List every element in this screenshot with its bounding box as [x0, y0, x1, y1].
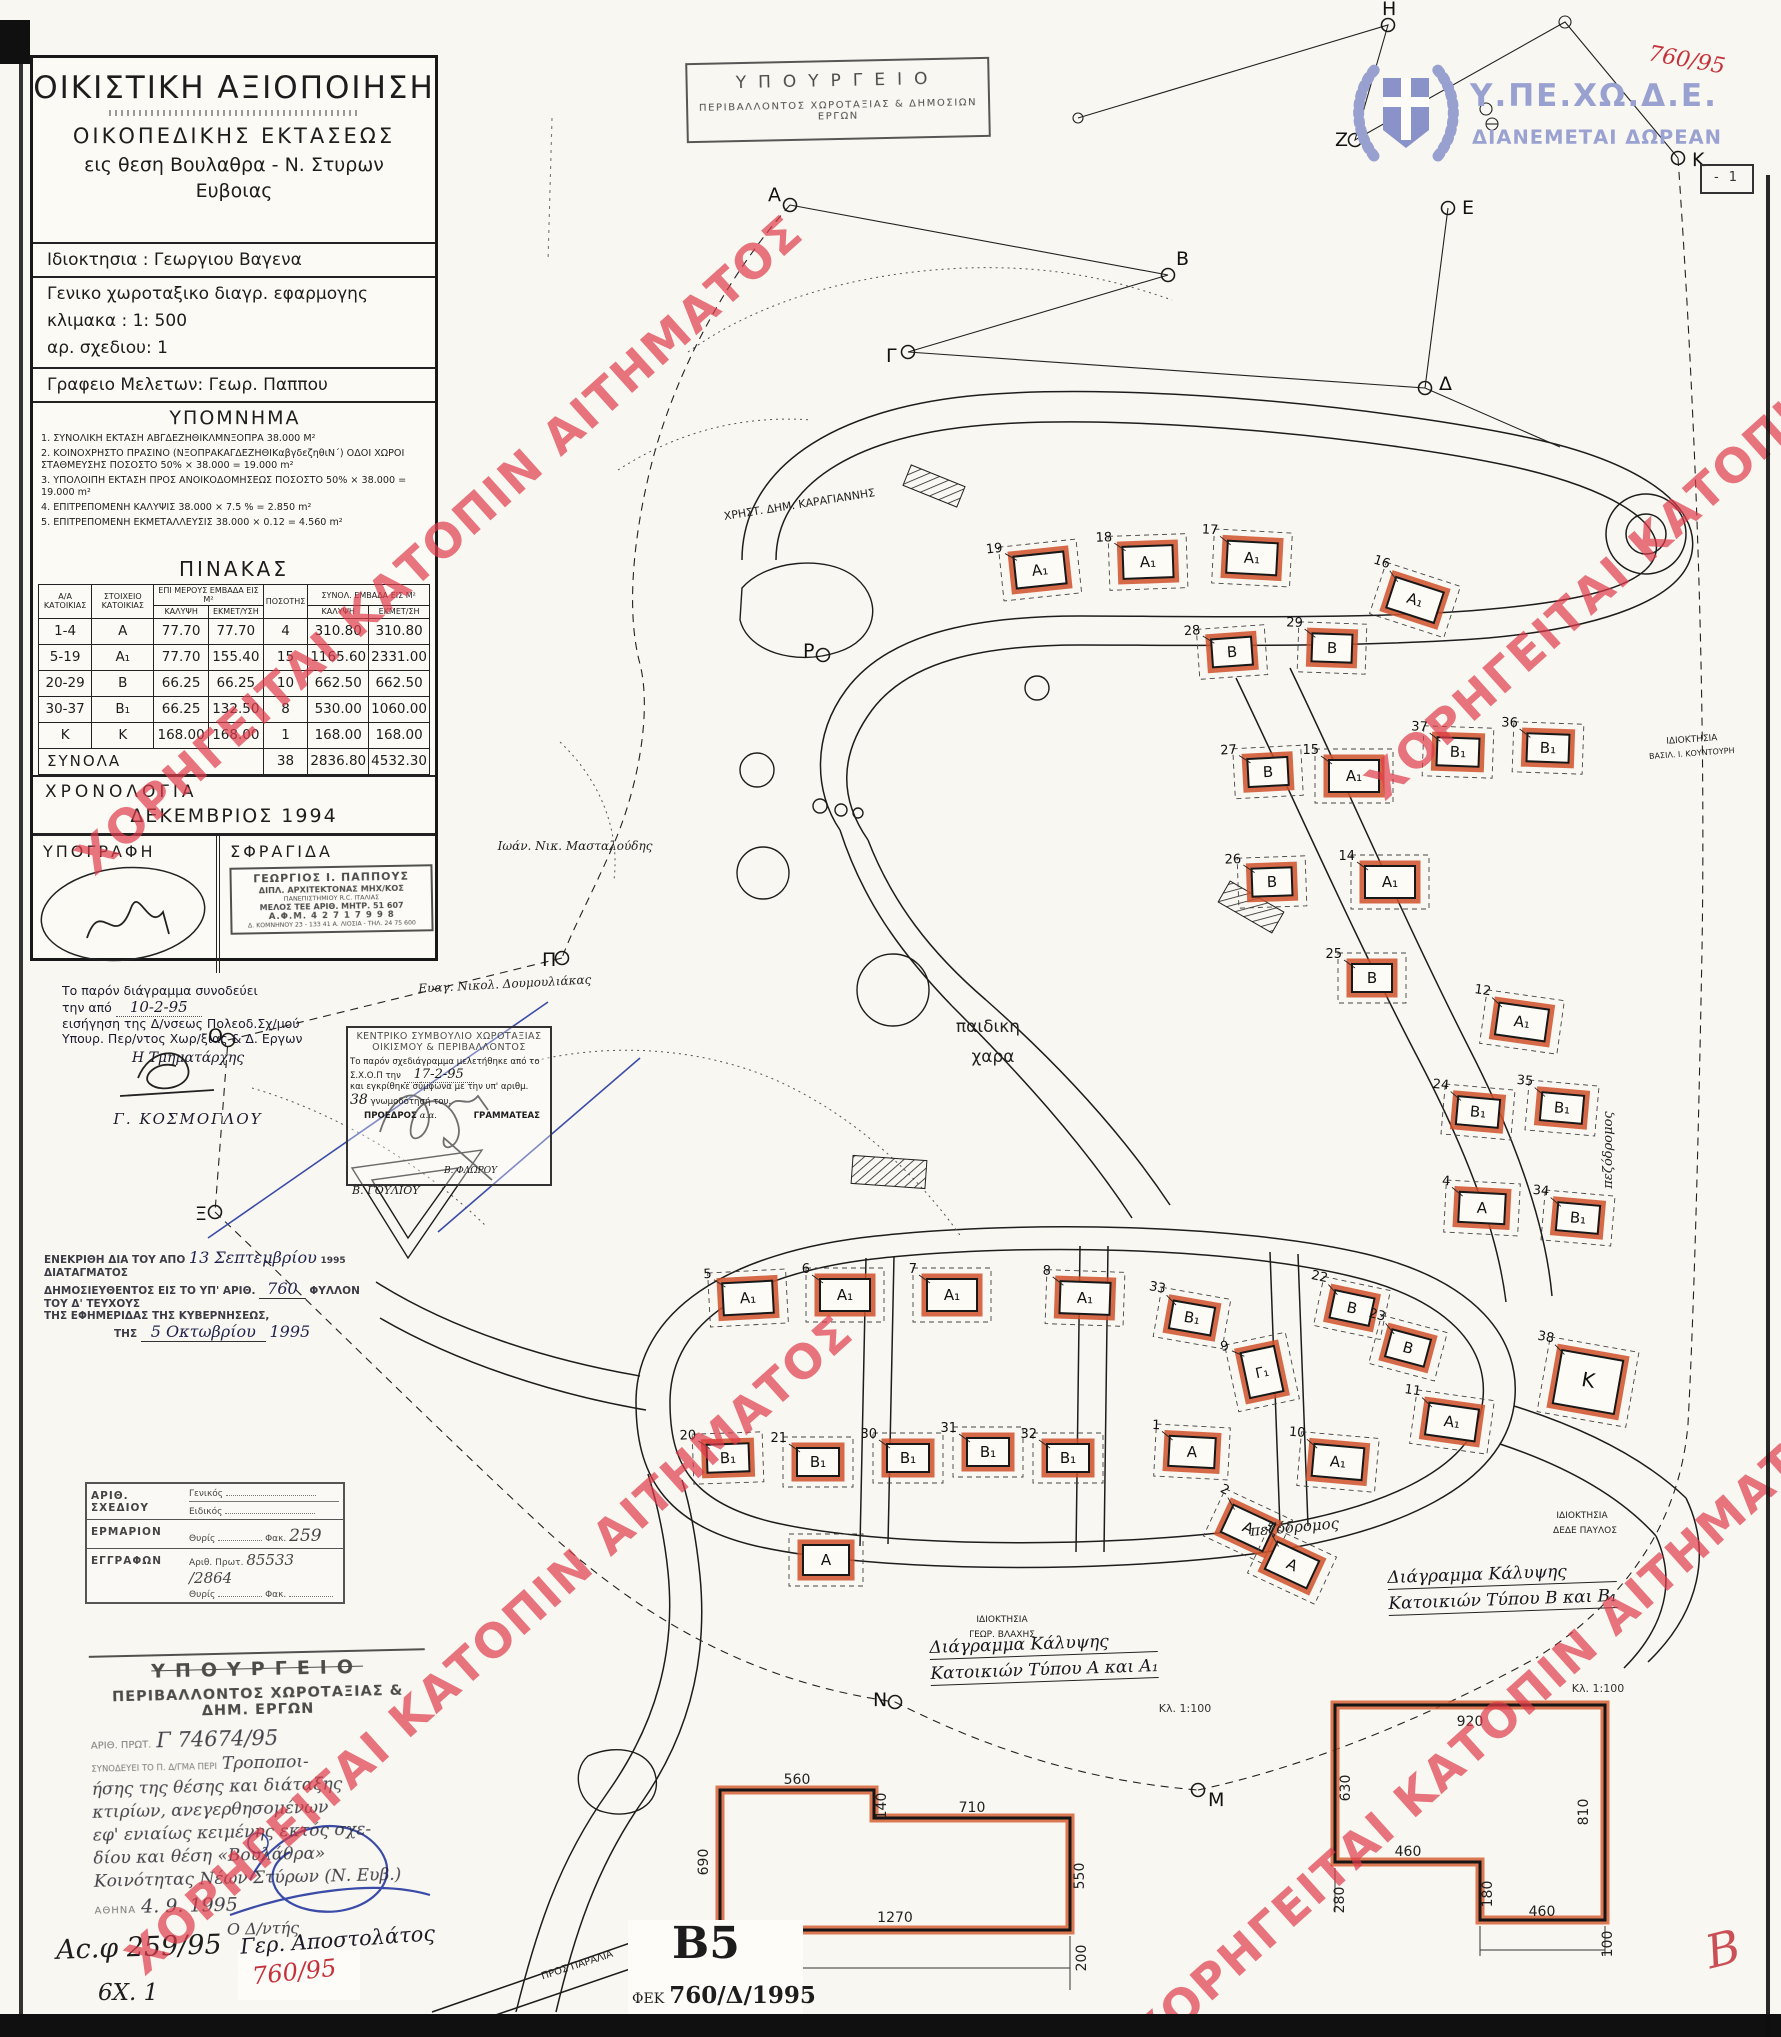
table-cell: 15 [263, 644, 308, 670]
building: Α₁12 [1467, 982, 1565, 1054]
building-number: 8 [1042, 1264, 1051, 1279]
signature-label: ΥΠΟΓΡΑΦΗ [43, 842, 216, 861]
protocol-label: ΑΡΙΘ. ΠΡΩΤ. [91, 1739, 152, 1751]
building-type-label: Α₁ [1443, 1412, 1462, 1432]
building: Α₁10 [1284, 1425, 1379, 1493]
totals-qty: 38 [263, 748, 308, 774]
table-cell: 168.00 [308, 722, 369, 748]
totals-exploit: 4532.30 [369, 748, 430, 774]
table-cell: Α₁ [92, 644, 154, 670]
survey-point-letter: Ξ [195, 1203, 207, 1225]
note-line: την από 10-2-95 [62, 998, 314, 1016]
table-cell: Β [92, 670, 154, 696]
table-cell: Κ [39, 722, 92, 748]
dimension-label: 920 [1457, 1714, 1484, 1730]
building-type-label: Α₁ [1077, 1289, 1094, 1308]
building-number: 16 [1372, 553, 1392, 572]
building: Β28 [1183, 619, 1267, 680]
building-number: 31 [940, 1421, 957, 1436]
dimension-label: 550 [1072, 1863, 1088, 1890]
legend-title: ΥΠΟΜΝΗΜΑ [41, 407, 429, 429]
top-stamp-subtitle: ΠΕΡΙΒΑΛΛΟΝΤΟΣ ΧΩΡΟΤΑΞΙΑΣ & ΔΗΜΟΣΙΩΝ ΕΡΓΩ… [688, 97, 988, 125]
building-type-label: Β [1367, 969, 1377, 987]
scan-edge-right [1766, 175, 1770, 2037]
table-cell: 310.80 [308, 618, 369, 644]
building-number: 22 [1310, 1268, 1329, 1286]
council-title-2: ΟΙΚΙΣΜΟΥ & ΠΕΡΙΒΑΛΛΟΝΤΟΣ [350, 1042, 548, 1053]
dimension-label: 630 [1338, 1775, 1354, 1802]
building-number: 2 [1218, 1482, 1232, 1499]
archive-fak-handwritten: 259 [289, 1526, 321, 1546]
building: Β27 [1220, 739, 1303, 799]
building: Β₁34 [1528, 1183, 1615, 1246]
building: Α₁5 [703, 1263, 788, 1327]
building-number: 32 [1020, 1427, 1037, 1442]
architect-stamp: ΓΕΩΡΓΙΟΣ Ι. ΠΑΠΠΟΥΣ ΔΙΠΛ. ΑΡΧΙΤΕΚΤΟΝΑΣ Μ… [230, 864, 434, 935]
area-table-section: ΠΙΝΑΚΑΣ Α/Α ΚΑΤΟΙΚΙΑΣΣΤΟΙΧΕΙΟ ΚΑΤΟΙΚΙΑΣΕ… [33, 557, 435, 775]
building-type-label: Α₁ [1382, 873, 1398, 891]
archive-row-3: ΕΓΓΡΑΦΩΝ Αριθ. Πρωτ. 85533 /2864 Θυρίς Φ… [87, 1549, 343, 1602]
coverage-a-title: Διάγραμμα Κάλυψης Κατοικιών Τύπου Α και … [929, 1630, 1159, 1690]
sheet-subtitle-2: εις θεση Βουλαθρα - Ν. Στυρων [33, 154, 435, 176]
building-number: 5 [703, 1267, 712, 1282]
building: Α₁17 [1199, 522, 1293, 587]
decree-line-1: ΕΝΕΚΡΙΘΗ ΔΙΑ ΤΟΥ ΑΠΟ 13 Σεπτεμβρίου 1995… [44, 1248, 374, 1279]
council-body-2: Σ.Χ.Ο.Π την 17-2-95 [350, 1067, 548, 1082]
stamp-cell: ΣΦΡΑΓΙΔΑ ΓΕΩΡΓΙΟΣ Ι. ΠΑΠΠΟΥΣ ΔΙΠΛ. ΑΡΧΙΤ… [216, 836, 435, 973]
signature-stamp-row: ΥΠΟΓΡΑΦΗ ΣΦΡΑΓΙΔΑ ΓΕΩΡΓΙΟΣ Ι. ΠΑΠΠΟΥΣ ΔΙ… [33, 833, 435, 973]
note-line: εισήγηση της Δ/νσεως Πολεοδ.Σχ/μού [62, 1016, 314, 1031]
note-signer-title: Η Τμηματάρχης [62, 1050, 314, 1066]
chronology-row: ΧΡΟΝΟΛΟΓΙΑ ΔΕΚΕΜΒΡΙΟΣ 1994 [33, 775, 435, 833]
decree-line-2: ΔΗΜΟΣΙΕΥΘΕΝΤΟΣ ΕΙΣ ΤΟ ΥΠ' ΑΡΙΘ. 760 ΦΥΛΛ… [44, 1279, 374, 1310]
council-secretary-label: ΓΡΑΜΜΑΤΕΑΣ [474, 1111, 540, 1121]
survey-point-letter: Ρ [803, 640, 814, 662]
building-type-label: Β₁ [1553, 1098, 1571, 1117]
dimension-label: 810 [1576, 1799, 1592, 1826]
building: Α1 [1149, 1418, 1230, 1480]
chronology-label: ΧΡΟΝΟΛΟΓΙΑ [45, 782, 198, 802]
building: Α₁7 [909, 1262, 991, 1322]
sheet-code: Β5 [672, 1918, 740, 1969]
survey-point-letter: Δ [1439, 373, 1452, 395]
table-cell: 1 [263, 722, 308, 748]
building-type-label: Β₁ [1469, 1102, 1487, 1121]
building: Κ38 [1525, 1329, 1640, 1428]
building-type-label: Α₁ [1329, 1452, 1347, 1471]
building: Β23 [1357, 1306, 1449, 1381]
building: Β₁31 [940, 1421, 1023, 1477]
accompany-note: Το παρόν διάγραμμα συνοδεύει την από 10-… [62, 983, 314, 1128]
decree-number-handwritten: 760 [259, 1279, 306, 1299]
coverage-scale-label: Κλ. 1:100 [1159, 1702, 1211, 1715]
drawing-number: αρ. σχεδιου: 1 [47, 338, 435, 358]
note-line: Το παρόν διάγραμμα συνοδεύει [62, 983, 314, 998]
building-type-label: Α₁ [944, 1286, 960, 1304]
building-number: 35 [1516, 1073, 1534, 1089]
council-president-name: Β. ΓΟΥΛΙΟΥ [352, 1184, 420, 1197]
table-cell: 4 [263, 618, 308, 644]
coverage-b-title: Διάγραμμα Κάλυψης Κατοικιών Τύπου Β και … [1387, 1560, 1617, 1620]
building-type-label: Β₁ [1540, 739, 1557, 758]
building: Β₁37 [1410, 719, 1494, 778]
plan-text-labels: ΧΡΗΣΤ. ΔΗΜ. ΚΑΡΑΓΙΑΝΝΗΣΙωάν. Νικ. Μασταλ… [417, 486, 1735, 2006]
scan-edge-left [19, 28, 23, 2014]
ministry-stamp-block: ΥΠΟΥΡΓΕΙΟ ΠΕΡΙΒΑΛΛΟΝΤΟΣ ΧΩΡΟΤΑΞΙΑΣ & ΔΗΜ… [89, 1648, 431, 1943]
building-number: 21 [770, 1431, 787, 1446]
drawing-info: Γενικο χωροταξικο διαγρ. εφαρμογης κλιμα… [33, 276, 435, 367]
gazette-reference: ΦΕΚ 760/Δ/1995 [632, 1982, 816, 2009]
building-type-label: Α₁ [1031, 560, 1049, 580]
plan-label: πεζόδρομος [1601, 1111, 1616, 1190]
building-type-label: Α₁ [837, 1286, 853, 1304]
table-cell: 2331.00 [369, 644, 430, 670]
building-number: 6 [802, 1262, 810, 1277]
scanned-site-plan-sheet: ΧΟΡΗΓΕΙΤΑΙ ΚΑΤΟΠΙΝ ΑΙΤΗΜΑΤΟΣ ΧΟΡΗΓΕΙΤΑΙ … [0, 0, 1781, 2037]
building-number: 11 [1403, 1382, 1421, 1399]
building: Α₁8 [1041, 1264, 1125, 1327]
survey-boundary [215, 16, 1703, 1790]
building-number: 25 [1325, 947, 1342, 962]
building-type-label: Β₁ [810, 1453, 826, 1471]
plan-label: Ιωάν. Νικ. Μασταλούδης [497, 839, 653, 853]
totals-label: ΣΥΝΟΛΑ [39, 748, 264, 774]
building: Β₁30 [860, 1427, 943, 1483]
building: Α [789, 1534, 863, 1586]
title-section: ΟΙΚΙΣΤΙΚΗ ΑΞΙΟΠΟΙΗΣΗ ΟΙΚΟΠΕΔΙΚΗΣ ΕΚΤΑΣΕΩ… [33, 58, 435, 242]
dimension-label: 690 [696, 1849, 712, 1876]
table-cell: 310.80 [369, 618, 430, 644]
legend-item: 4. ΕΠΙΤΡΕΠΟΜΕΝΗ ΚΑΛΥΨΙΣ 38.000 × 7.5 % =… [41, 502, 429, 514]
dimension-label: 100 [1600, 1931, 1616, 1958]
table-cell: 168.00 [208, 722, 263, 748]
building-number: 4 [1442, 1174, 1451, 1189]
building-number: 28 [1183, 623, 1201, 639]
legend-item: 1. ΣΥΝΟΛΙΚΗ ΕΚΤΑΣΗ ΑΒΓΔΕΖΗΘΙΚΛΜΝΞΟΠΡΑ 38… [41, 433, 429, 445]
building: Β₁24 [1428, 1077, 1515, 1140]
sheet-subtitle-1: ΟΙΚΟΠΕΔΙΚΗΣ ΕΚΤΑΣΕΩΣ [33, 124, 435, 148]
sheet-subtitle-3: Ευβοιας [33, 180, 435, 202]
decree-date-handwritten: 13 Σεπτεμβρίου [189, 1248, 317, 1267]
protocol-number-handwritten: Γ 74674/95 [156, 1726, 278, 1753]
building-type-label: Β₁ [1450, 743, 1467, 762]
building-type-label: Α [821, 1551, 832, 1569]
survey-point-letter: Η [1382, 0, 1396, 20]
table-cell: 155.40 [208, 644, 263, 670]
drawing-scale: κλιμακα : 1: 500 [47, 311, 435, 331]
building-number: 38 [1536, 1329, 1555, 1347]
building-number: 7 [909, 1262, 917, 1277]
table-cell: 1060.00 [369, 696, 430, 722]
dimension-label: 710 [959, 1800, 986, 1816]
note-date-handwritten: 10-2-95 [116, 998, 202, 1017]
building-type-label: Β [1226, 643, 1238, 662]
building-type-label: Β₁ [1060, 1449, 1076, 1467]
stamp-label: ΣΦΡΑΓΙΔΑ [230, 842, 435, 861]
plan-label: Ευαγ. Νικολ. Δουμουλιάκας [417, 972, 592, 995]
title-block: ΟΙΚΙΣΤΙΚΗ ΑΞΙΟΠΟΙΗΣΗ ΟΙΚΟΠΕΔΙΚΗΣ ΕΚΤΑΣΕΩ… [30, 55, 438, 961]
building-number: 9 [1219, 1338, 1230, 1354]
building-type-label: Α₁ [739, 1289, 756, 1308]
building-number: 1 [1152, 1418, 1161, 1433]
design-office-row: Γραφειο Μελετων: Γεωρ. Παππου [33, 367, 435, 403]
drawing-type: Γενικο χωροταξικο διαγρ. εφαρμογης [47, 284, 435, 304]
survey-point-letter: Ε [1462, 197, 1474, 219]
dimension-label: 180 [1480, 1881, 1496, 1908]
building: Α₁15 [1302, 743, 1393, 803]
building-number: 37 [1411, 719, 1428, 735]
table-cell: 1-4 [39, 618, 92, 644]
survey-point-letter: Γ [886, 345, 897, 367]
city-label: ΑΘΗΝΑ [94, 1905, 136, 1917]
table-cell: 8 [263, 696, 308, 722]
scan-edge-corner [0, 20, 30, 64]
building-number: 15 [1302, 743, 1319, 758]
survey-point-letter: Ζ [1335, 129, 1348, 151]
archive-protocol-handwritten: 85533 /2864 [189, 1551, 294, 1587]
building-number: 10 [1288, 1425, 1306, 1441]
decree-line-3: ΤΗΣ ΕΦΗΜΕΡΙΔΑΣ ΤΗΣ ΚΥΒΕΡΝΗΣΕΩΣ, [44, 1310, 374, 1322]
legend-item: 3. ΥΠΟΛΟΙΠΗ ΕΚΤΑΣΗ ΠΡΟΣ ΑΝΟΙΚΟΔΟΜΗΣΕΩΣ Π… [41, 475, 429, 499]
plan-label: ΔΕΔΕ ΠΑΥΛΟΣ [1553, 1526, 1617, 1536]
dimension-label: 460 [1529, 1904, 1556, 1920]
top-stamp-title: ΥΠΟΥΡΓΕΙΟ [687, 68, 987, 94]
building-number: 30 [860, 1427, 877, 1442]
building-number: 34 [1532, 1183, 1550, 1199]
building-number: 24 [1432, 1077, 1450, 1093]
building: Β₁33 [1141, 1279, 1232, 1348]
decree-date2-handwritten: 5 Οκτωβρίου [141, 1322, 266, 1342]
table-cell: 10 [263, 670, 308, 696]
building-type-label: Β₁ [720, 1449, 737, 1468]
table-cell: Β₁ [92, 696, 154, 722]
building-number: 26 [1224, 852, 1241, 868]
building: Β₁21 [770, 1431, 853, 1487]
table-cell: 662.50 [369, 670, 430, 696]
table-cell: 168.00 [369, 722, 430, 748]
council-body-3: και εγκρίθηκε σύμφωνα με την υπ' αριθμ. [350, 1082, 548, 1092]
survey-point-letter: Β [1176, 248, 1189, 270]
legend-section: ΥΠΟΜΝΗΜΑ 1. ΣΥΝΟΛΙΚΗ ΕΚΤΑΣΗ ΑΒΓΔΕΖΗΘΙΚΛΜ… [33, 403, 435, 555]
survey-point-letter: Μ [1208, 1789, 1224, 1811]
illegible-subtitle-bar [109, 110, 359, 116]
ypexode-acronym: Υ.ΠΕ.ΧΩ.Δ.Ε. [1470, 78, 1718, 114]
legend-item: 2. ΚΟΙΝΟΧΡΗΣΤΟ ΠΡΑΣΙΝΟ (ΝΞΟΠΡΑΚΑΓΔΕΖΗΘΙΚ… [41, 448, 429, 472]
archive-stamp: ΑΡΙΘ. ΣΧΕΔΙΟΥ Γενικός Ειδικός ΕΡΜΑΡΙΟΝ Θ… [85, 1482, 345, 1604]
decree-note: ΕΝΕΚΡΙΘΗ ΔΙΑ ΤΟΥ ΑΠΟ 13 Σεπτεμβρίου 1995… [44, 1248, 374, 1341]
table-cell: 66.25 [208, 670, 263, 696]
council-body-4: 38 γνωμοδότησή του. [350, 1092, 548, 1108]
council-number-handwritten: 38 [350, 1092, 368, 1108]
table-cell: 662.50 [308, 670, 369, 696]
building: Β₁36 [1500, 715, 1584, 774]
building: Α₁16 [1358, 553, 1463, 638]
decree-line-4: ΤΗΣ 5 Οκτωβρίου 1995 [114, 1322, 374, 1341]
building-number: 33 [1148, 1279, 1167, 1297]
ypexode-slogan: ΔΙΑΝΕΜΕΤΑΙ ΔΩΡΕΑΝ [1472, 126, 1722, 149]
ypexode-emblem [1350, 52, 1462, 170]
coverage-scale-label: Κλ. 1:100 [1572, 1682, 1624, 1695]
building-type-label: Α [1186, 1443, 1198, 1462]
architect-signature-scribble [35, 862, 211, 966]
dimension-label: 560 [784, 1772, 811, 1788]
note-line: Υπουρ. Περ/ντος Χωρ/ξίας & Δ. Εργων [62, 1031, 314, 1046]
council-title-1: ΚΕΝΤΡΙΚΟ ΣΥΜΒΟΥΛΙΟ ΧΩΡΟΤΑΞΙΑΣ [350, 1031, 548, 1042]
top-ministry-stamp: ΥΠΟΥΡΓΕΙΟ ΠΕΡΙΒΑΛΛΟΝΤΟΣ ΧΩΡΟΤΑΞΙΑΣ & ΔΗΜ… [685, 57, 991, 143]
building-number: 29 [1286, 615, 1303, 631]
building-type-label: Β [1267, 873, 1278, 891]
table-cell: 530.00 [308, 696, 369, 722]
decree-ref-label: ΣΥΝΟΔΕΥΕΙ ΤΟ Π. Δ/ΓΜΑ ΠΕΡΙ [91, 1762, 217, 1775]
totals-cover: 2836.80 [308, 748, 369, 774]
dimension-label: 460 [1395, 1844, 1422, 1860]
plan-label: ΒΑΣΙΛ. Ι. ΚΟΥΝΤΟΥΡΗ [1649, 746, 1735, 761]
dimension-label: 200 [1074, 1945, 1090, 1972]
archive-row-2: ΕΡΜΑΡΙΟΝ Θυρίς Φακ. 259 [87, 1520, 343, 1549]
table-cell: 66.25 [154, 670, 209, 696]
subject-handwritten-0: Τροποποι- [222, 1752, 309, 1774]
table-cell: 77.70 [208, 618, 263, 644]
building-type-label: Α₁ [1140, 553, 1157, 572]
owner-row: Ιδιοκτησια : Γεωργιου Βαγενα [33, 242, 435, 276]
building: Α4 [1439, 1174, 1520, 1236]
area-table: Α/Α ΚΑΤΟΙΚΙΑΣΣΤΟΙΧΕΙΟ ΚΑΤΟΙΚΙΑΣΕΠΙ ΜΕΡΟΥ… [38, 584, 430, 775]
building: Β₁20 [679, 1426, 763, 1485]
table-cell: 20-29 [39, 670, 92, 696]
dimension-label: 280 [1332, 1887, 1348, 1914]
survey-point-letter: Π [542, 949, 556, 971]
plan-label: παιδικη [956, 1017, 1020, 1037]
survey-point-letter: Ν [873, 1689, 887, 1711]
council-president-label: ΠΡΟΕΔΡΟΣ α.α. [364, 1111, 437, 1121]
building: Β22 [1301, 1268, 1391, 1340]
building-type-label: Β [1327, 639, 1338, 657]
table-cell: 77.70 [154, 644, 209, 670]
table-cell: 30-37 [39, 696, 92, 722]
table-cell: 168.00 [154, 722, 209, 748]
table-cell: Α [92, 618, 154, 644]
building-number: 19 [985, 541, 1003, 558]
coverage-diagram-outlines [720, 1705, 1605, 1990]
table-title: ΠΙΝΑΚΑΣ [38, 557, 430, 581]
sheet-title: ΟΙΚΙΣΤΙΚΗ ΑΞΙΟΠΟΙΗΣΗ [33, 70, 435, 106]
building: Α₁6 [802, 1262, 884, 1322]
building-footprints: Α₁19Α₁18Α₁17Α₁16Β28Β29Β27Α₁15Β₁37Β₁36Β26… [679, 522, 1640, 1604]
building: Α₁14 [1338, 849, 1429, 909]
building-type-label: Α₁ [1513, 1012, 1532, 1032]
council-date-handwritten: 17-2-95 [404, 1067, 474, 1083]
ministry-stamp-subtitle: ΠΕΡΙΒΑΛΛΟΝΤΟΣ ΧΩΡΟΤΑΞΙΑΣ & ΔΗΜ. ΕΡΓΩΝ [90, 1682, 427, 1722]
survey-point-letter: Α [768, 184, 781, 206]
building-type-label: Β [1262, 763, 1273, 782]
table-cell: 5-19 [39, 644, 92, 670]
signature-cell: ΥΠΟΓΡΑΦΗ [33, 836, 216, 973]
stamp-date-handwritten: 4. 9. 1995 [141, 1894, 238, 1918]
chronology-value: ΔΕΚΕΜΒΡΙΟΣ 1994 [33, 805, 435, 827]
page-marker-box: - 1 [1700, 164, 1754, 194]
building-number: 36 [1501, 715, 1518, 731]
building-type-label: Β₁ [1182, 1308, 1201, 1329]
table-cell: 132.50 [208, 696, 263, 722]
council-approval-box: ΚΕΝΤΡΙΚΟ ΣΥΜΒΟΥΛΙΟ ΧΩΡΟΤΑΞΙΑΣ ΟΙΚΙΣΜΟΥ &… [346, 1026, 552, 1186]
building-number: 14 [1338, 849, 1355, 864]
building-type-label: Β₁ [980, 1443, 996, 1461]
building-type-label: Α₁ [1346, 767, 1362, 785]
council-body-1: Το παρόν σχεδιάγραμμα μελετήθηκε από το [350, 1057, 548, 1067]
table-cell: 77.70 [154, 618, 209, 644]
building-number: 12 [1473, 982, 1491, 999]
table-cell: 66.25 [154, 696, 209, 722]
legend-item: 5. ΕΠΙΤΡΕΠΟΜΕΝΗ ΕΚΜΕΤΑΛΛΕΥΣΙΣ 38.000 × 0… [41, 517, 429, 529]
building-number: 17 [1201, 522, 1218, 538]
council-secretary-name: Β. ΦΛΩΡΟΥ [444, 1166, 497, 1176]
table-cell: Κ [92, 722, 154, 748]
building: Β₁35 [1512, 1073, 1599, 1136]
building: Γ₁9 [1219, 1326, 1299, 1412]
scan-edge-bottom [0, 2014, 1781, 2037]
building-number: 20 [679, 1428, 696, 1444]
building: Α₁19 [985, 533, 1081, 602]
building-number: 27 [1220, 743, 1237, 759]
file-subreference-handwritten: 6Χ. 1 [98, 1980, 158, 2006]
archive-row-1: ΑΡΙΘ. ΣΧΕΔΙΟΥ Γενικός Ειδικός [87, 1484, 343, 1520]
building-type-label: Α [1476, 1199, 1488, 1218]
dimension-label: 140 [874, 1793, 890, 1820]
building: Β₁32 [1020, 1427, 1103, 1483]
building-number: 18 [1095, 530, 1112, 546]
building-type-label: Α₁ [1243, 549, 1260, 568]
plan-label: ΧΡΗΣΤ. ΔΗΜ. ΚΑΡΑΓΙΑΝΝΗΣ [723, 486, 876, 523]
note-signer-name: Γ. ΚΟΣΜΟΓΛΟΥ [62, 1110, 314, 1128]
building: Α₁18 [1095, 528, 1188, 591]
file-reference-handwritten: Αc.φ 259/95 [56, 1929, 223, 1966]
plan-label: ΙΔΙΟΚΤΗΣΙΑ [1556, 1511, 1608, 1521]
dimension-label: 1270 [877, 1910, 913, 1926]
building-type-label: Β₁ [900, 1449, 916, 1467]
plan-label: χαρα [971, 1047, 1014, 1067]
building: Α₁11 [1397, 1382, 1495, 1454]
table-cell: 1165.60 [308, 644, 369, 670]
plan-label: ΙΔΙΟΚΤΗΣΙΑ [1666, 733, 1719, 747]
building-type-label: Β₁ [1569, 1208, 1587, 1227]
legend-items: 1. ΣΥΝΟΛΙΚΗ ΕΚΤΑΣΗ ΑΒΓΔΕΖΗΘΙΚΛΜΝΞΟΠΡΑ 38… [41, 433, 429, 529]
plan-label: ΙΔΙΟΚΤΗΣΙΑ [976, 1615, 1028, 1625]
